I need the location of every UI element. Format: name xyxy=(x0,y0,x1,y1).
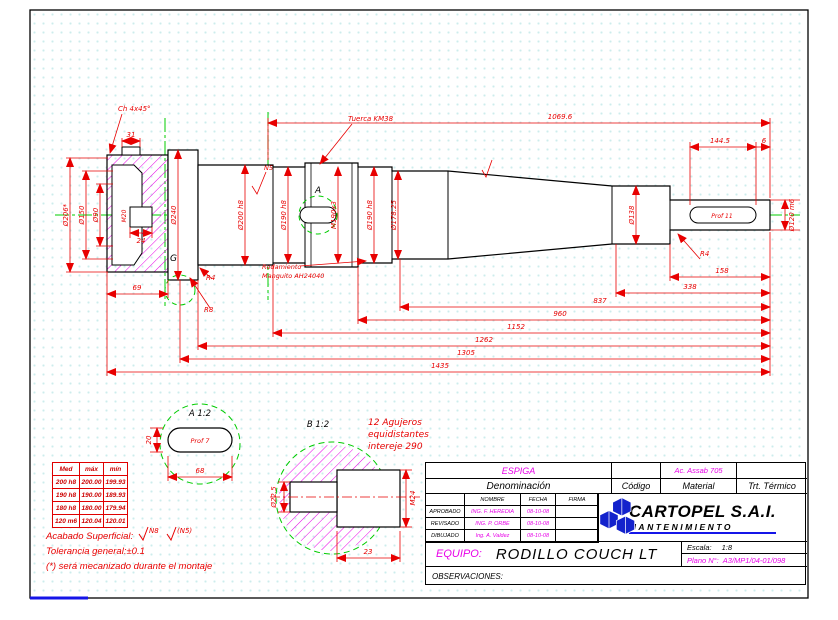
col-fecha: FECHA xyxy=(521,494,556,506)
dim-d240: Ø240 xyxy=(170,205,178,225)
finish-note: Acabado Superficial: N8 (N5) xyxy=(46,524,212,544)
finish-n5-label: N5 xyxy=(264,164,273,172)
equipo-label: EQUIPO: xyxy=(436,548,482,560)
escala-label: Escala: xyxy=(687,543,712,552)
dim-d190b: Ø190 h8 xyxy=(366,199,374,231)
treatment-value xyxy=(736,463,807,478)
detail-g-ref: G xyxy=(170,254,177,264)
tolerance-table: Med máx mín 200 h8200.00199.93 190 h8190… xyxy=(52,462,128,528)
svg-text:intereje 290: intereje 290 xyxy=(368,442,423,452)
finish-label: Acabado Superficial: xyxy=(46,531,133,542)
table-row: 180 h8180.00179.94 xyxy=(53,502,128,515)
logo-area: CARTOPEL S.A.I. MANTENIMIENTO xyxy=(597,493,807,541)
dim-d206: Ø206* xyxy=(62,203,70,227)
observaciones-row: OBSERVACIONES: xyxy=(426,566,807,586)
dim-1069: 1069.6 xyxy=(548,113,573,121)
cartopel-logo-icon xyxy=(598,494,642,538)
nut-note: Tuerca KM38 xyxy=(348,115,394,123)
svg-text:N8: N8 xyxy=(149,527,159,535)
dim-d120: Ø120 m6 xyxy=(788,198,796,232)
material-label: Material xyxy=(660,478,736,493)
approval-row: REVISADO ING. P. ORBE 08-10-08 xyxy=(426,518,599,530)
dim-1262: 1262 xyxy=(475,336,493,344)
dim-1152: 1152 xyxy=(507,323,525,331)
detail-a-ref: A xyxy=(314,186,321,196)
company-name: CARTOPEL S.A.I. xyxy=(629,502,776,522)
dim-158: 158 xyxy=(715,267,729,275)
dim-338: 338 xyxy=(683,283,697,291)
detail-a-length: 68 xyxy=(196,467,205,475)
plano-value: A3/MP1/04-01/098 xyxy=(723,556,786,565)
denomination-value: ESPIGA xyxy=(426,463,611,478)
escala-value: 1:8 xyxy=(722,543,732,552)
dim-31: 31 xyxy=(127,131,136,139)
drawing-notes: Acabado Superficial: N8 (N5) Tolerancia … xyxy=(46,524,212,574)
dim-d150: Ø150 xyxy=(78,205,86,225)
dim-6: 6 xyxy=(762,137,767,145)
detail-b-note: 12 Agujeros equidistantes intereje 290 xyxy=(368,418,429,452)
detail-b-bore: Ø22.5 xyxy=(270,486,278,509)
table-row: 190 h8190.00189.93 xyxy=(53,489,128,502)
svg-text:(N5): (N5) xyxy=(177,527,192,535)
assembly-note: (*) será mecanizado durante el montaje xyxy=(46,559,212,574)
surface-finish-alt-icon: (N5) xyxy=(164,524,198,542)
table-row: 200 h8200.00199.93 xyxy=(53,476,128,489)
surface-finish-icon: N8 xyxy=(136,524,162,542)
chamfer-note: Ch 4x45° xyxy=(118,105,151,113)
col-firma: FIRMA xyxy=(556,494,599,506)
tolerance-note: Tolerancia general:±0.1 xyxy=(46,544,212,559)
fillet-r4-right: R4 xyxy=(700,250,709,258)
code-value xyxy=(611,463,660,478)
dim-d200: Ø200 h8 xyxy=(237,199,245,231)
title-block: ESPIGA Ac. Assab 705 Denominación Código… xyxy=(425,462,806,585)
dim-d178: Ø178.25 xyxy=(390,199,398,231)
drawing-sheet: Ch 4x45° 1069.6 Tuerca KM38 144.5 6 31 Ø… xyxy=(0,0,838,620)
detail-b-depth: 23 xyxy=(364,548,373,556)
svg-text:12 Agujeros: 12 Agujeros xyxy=(368,418,422,428)
equipo-value: RODILLO COUCH LT xyxy=(496,546,658,563)
treatment-label: Trt. Térmico xyxy=(736,478,807,493)
dim-144: 144.5 xyxy=(710,137,731,145)
dim-m190: M190x3 xyxy=(330,201,338,229)
dim-1435: 1435 xyxy=(431,362,449,370)
plano-cell: Plano N°: A3/MP1/04-01/098 xyxy=(681,553,807,566)
plano-label: Plano N°: xyxy=(687,556,719,565)
dim-d190a: Ø190 h8 xyxy=(280,199,288,231)
dim-960: 960 xyxy=(553,310,567,318)
dim-m20: M20 xyxy=(121,209,128,222)
dim-1305: 1305 xyxy=(457,349,475,357)
dim-837: 837 xyxy=(593,297,607,305)
department-name: MANTENIMIENTO xyxy=(629,522,776,534)
detail-b-thread: M24 xyxy=(409,491,417,506)
approval-row: APROBADO ING. F. HEREDIA 08-10-08 xyxy=(426,506,599,518)
col-nombre: NOMBRE xyxy=(465,494,521,506)
dim-69: 69 xyxy=(133,284,142,292)
bearing-note-2: Manguito AH24040 xyxy=(262,272,324,280)
detail-a-title: A 1:2 xyxy=(188,409,211,419)
material-value: Ac. Assab 705 xyxy=(660,463,736,478)
bearing-note-1: Rodamiento xyxy=(262,263,301,271)
detail-a-width: 20 xyxy=(145,435,153,444)
detail-b-title: B 1:2 xyxy=(307,420,329,430)
fillet-r8: R8 xyxy=(204,306,214,314)
approval-table: NOMBRE FECHA FIRMA APROBADO ING. F. HERE… xyxy=(426,493,599,543)
detail-b-view: B 1:2 12 Agujeros equidistantes intereje… xyxy=(270,418,429,562)
keyway-depth-label: Prof 11 xyxy=(711,213,732,220)
svg-text:equidistantes: equidistantes xyxy=(368,430,429,440)
dim-d90: Ø90 xyxy=(92,207,100,223)
observaciones-label: OBSERVACIONES: xyxy=(432,572,503,581)
fillet-r4-left: R4 xyxy=(206,274,215,282)
tol-header: Med xyxy=(53,463,80,476)
detail-a-prof: Prof 7 xyxy=(190,437,210,445)
equipo-row: EQUIPO: RODILLO COUCH LT xyxy=(426,541,681,566)
escala-cell: Escala: 1:8 xyxy=(681,541,807,553)
dim-24: 24 xyxy=(137,237,146,245)
dim-d138: Ø138 xyxy=(628,205,636,225)
denomination-label: Denominación xyxy=(426,478,611,493)
detail-a-view: A 1:2 Prof 7 20 68 xyxy=(145,404,240,484)
code-label: Código xyxy=(611,478,660,493)
